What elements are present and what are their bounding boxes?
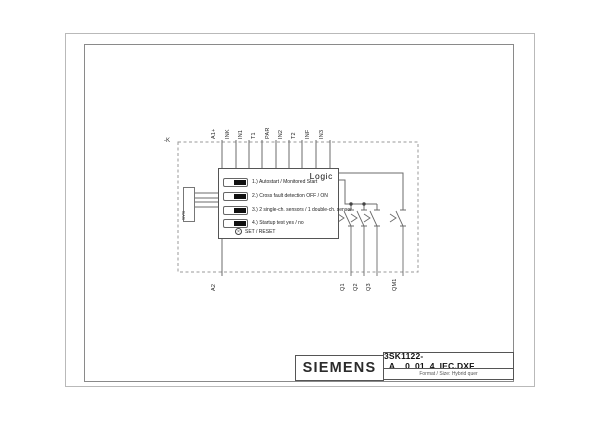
terminal-label-t1: T1: [251, 132, 258, 139]
terminal-label-a1plus: A1+: [211, 128, 218, 139]
terminal-label-inf: INF: [305, 130, 312, 139]
set-reset-button-icon: ×: [235, 228, 242, 235]
system-interface-connector: SYS: [183, 187, 195, 222]
terminal-label-qm1: QM1: [392, 278, 399, 291]
terminal-label-in3: IN3: [319, 130, 326, 139]
dip-switch-2-icon: [223, 192, 248, 201]
dip-switch-row-1: 1.) Autostart / Monitored Start: [223, 177, 317, 187]
dip-switch-2-knob: [234, 194, 246, 199]
dip-switch-1-label: 1.) Autostart / Monitored Start: [252, 179, 317, 185]
drawing-sheet: -K A1+ INK IN1 T1 PAR IN2 T2 INF IN3 A2 …: [0, 0, 600, 424]
dip-switch-3-label: 3.) 2 single-ch. sensors / 1 double-ch. …: [252, 207, 352, 213]
dip-switch-4-knob: [234, 221, 246, 226]
terminal-label-ink: INK: [225, 129, 232, 139]
dip-switch-1-icon: [223, 178, 248, 187]
terminal-label-in2: IN2: [278, 130, 285, 139]
dip-switch-row-3: 3.) 2 single-ch. sensors / 1 double-ch. …: [223, 205, 352, 215]
terminal-label-q1: Q1: [340, 283, 347, 291]
drawing-format-info: Format / Size: Hybrid quer: [383, 368, 514, 380]
dip-switch-3-knob: [234, 208, 246, 213]
device-tag: -K: [164, 138, 170, 144]
drawing-filename: 3SK1122-_A__0_01_4_IEC.DXF: [383, 352, 514, 369]
terminal-label-t2: T2: [291, 132, 298, 139]
dip-switch-2-label: 2.) Cross fault detection OFF / ON: [252, 193, 328, 199]
dip-switch-row-2: 2.) Cross fault detection OFF / ON: [223, 191, 328, 201]
dip-switch-1-knob: [234, 180, 246, 185]
terminal-label-par: PAR: [265, 127, 272, 139]
set-reset-row: × SET / RESET: [235, 227, 275, 236]
terminal-label-a2: A2: [211, 284, 218, 291]
dip-switch-3-icon: [223, 206, 248, 215]
terminal-label-q3: Q3: [366, 283, 373, 291]
terminal-label-q2: Q2: [353, 283, 360, 291]
brand-logo-text: SIEMENS: [295, 355, 384, 381]
system-interface-label: SYS: [181, 211, 187, 220]
set-reset-label: SET / RESET: [245, 229, 275, 235]
logic-block: Logic 1.) Autostart / Monitored Start 2.…: [218, 168, 339, 239]
dip-switch-4-label: 4.) Startup test yes / no: [252, 220, 304, 226]
terminal-label-in1: IN1: [238, 130, 245, 139]
